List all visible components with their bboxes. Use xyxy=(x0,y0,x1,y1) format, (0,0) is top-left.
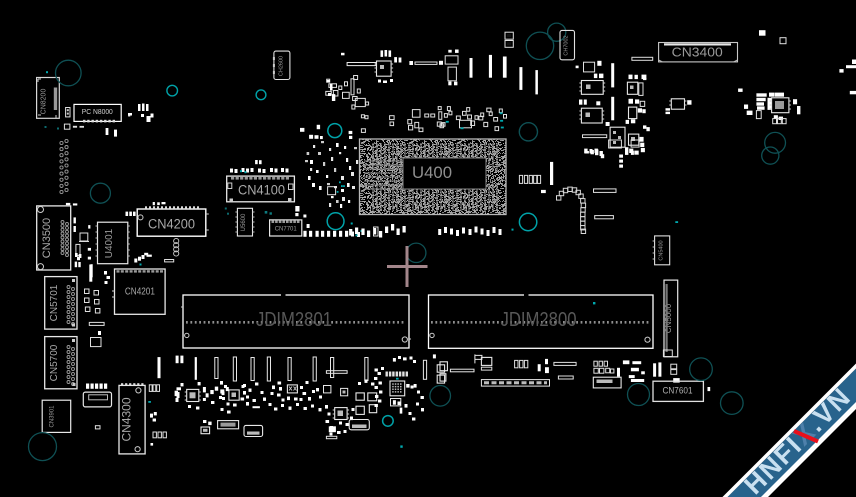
svg-text:CN4100: CN4100 xyxy=(238,182,285,197)
svg-text:PC N8000: PC N8000 xyxy=(82,107,113,116)
svg-text:CN4200: CN4200 xyxy=(148,217,195,232)
svg-text:JDIM2801: JDIM2801 xyxy=(256,309,332,331)
svg-text:CN5700: CN5700 xyxy=(49,344,60,381)
svg-text:CN7701: CN7701 xyxy=(275,227,298,233)
svg-text:CN5701: CN5701 xyxy=(49,284,60,321)
svg-text:CN5000: CN5000 xyxy=(664,303,673,333)
svg-text:CN3400: CN3400 xyxy=(672,45,723,59)
svg-text:CN5400: CN5400 xyxy=(659,240,665,260)
svg-text:CN7601: CN7601 xyxy=(663,386,693,396)
svg-text:CH7002: CH7002 xyxy=(564,35,570,55)
svg-text:CN3500: CN3500 xyxy=(41,218,53,258)
svg-text:CN4300: CN4300 xyxy=(120,397,134,441)
svg-text:U4001: U4001 xyxy=(104,228,115,258)
svg-text:CN8200: CN8200 xyxy=(41,89,48,115)
svg-text:CN4201: CN4201 xyxy=(125,286,155,297)
svg-text:CH2600: CH2600 xyxy=(279,56,285,76)
svg-text:CN3901: CN3901 xyxy=(50,405,56,428)
svg-text:U5600: U5600 xyxy=(241,213,247,231)
svg-text:JDIM2800: JDIM2800 xyxy=(501,309,577,331)
svg-text:U400: U400 xyxy=(412,164,452,182)
